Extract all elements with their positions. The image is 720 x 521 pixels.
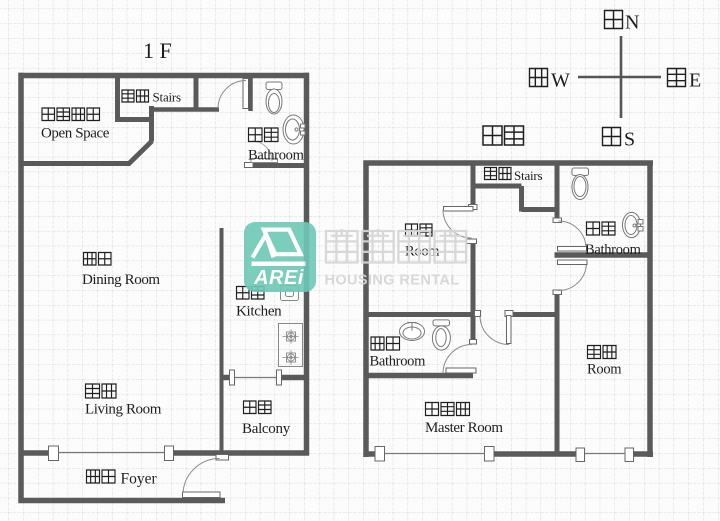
svg-text:Living Room: Living Room (85, 402, 162, 418)
svg-text:Room: Room (587, 362, 622, 378)
svg-text:Bathroom: Bathroom (585, 242, 642, 258)
svg-text:Open Space: Open Space (41, 126, 110, 142)
svg-text:Kitchen: Kitchen (236, 304, 282, 320)
svg-text:Dining Room: Dining Room (82, 272, 160, 288)
svg-text:Bathroom: Bathroom (370, 354, 427, 370)
svg-text:Balcony: Balcony (242, 421, 291, 437)
svg-text:1 F: 1 F (143, 38, 172, 63)
svg-text:AREi: AREi (253, 267, 304, 289)
svg-text:S: S (624, 129, 635, 151)
svg-text:Bathroom: Bathroom (248, 148, 305, 164)
svg-text:E: E (689, 70, 701, 92)
svg-text:Master Room: Master Room (425, 420, 503, 436)
svg-text:Foyer: Foyer (121, 471, 158, 488)
svg-text:N: N (625, 12, 639, 34)
svg-text:Stairs: Stairs (153, 90, 182, 105)
svg-text:Stairs: Stairs (514, 168, 543, 183)
svg-text:W: W (551, 70, 570, 92)
svg-text:HOUSING RENTAL: HOUSING RENTAL (325, 273, 460, 289)
